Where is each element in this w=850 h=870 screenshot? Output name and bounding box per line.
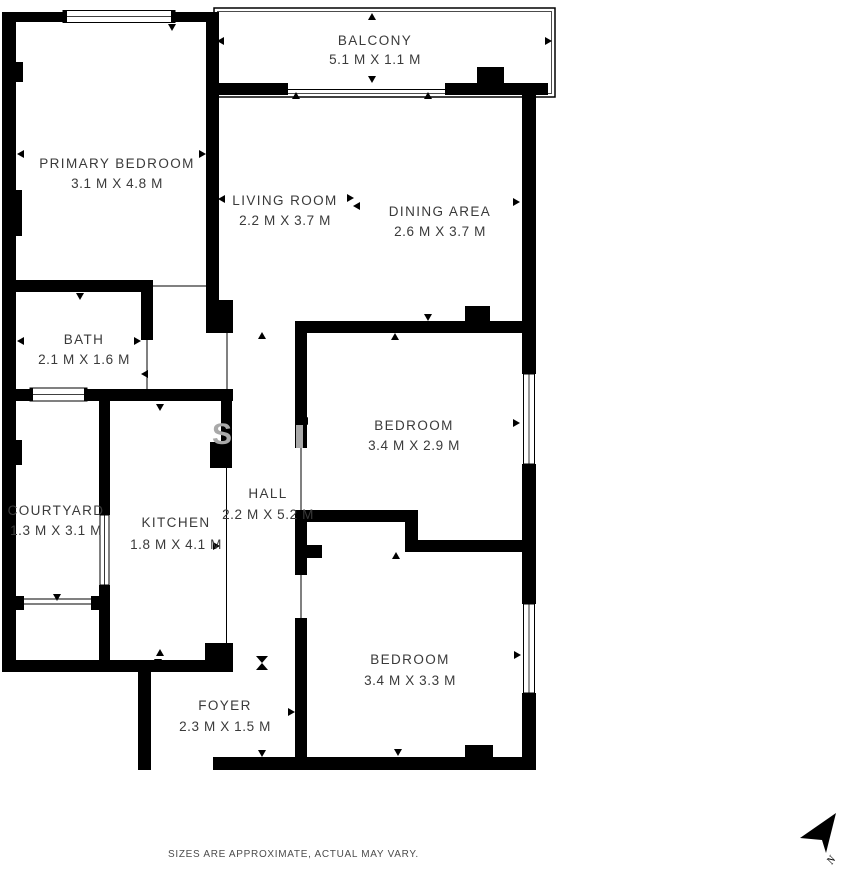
wall [522, 330, 536, 374]
window-cap [171, 11, 175, 23]
wall [138, 660, 151, 770]
room-dims-primary-bedroom: 3.1 M X 4.8 M [71, 176, 163, 191]
window-cap [84, 388, 87, 401]
wall [295, 321, 536, 333]
dimension-arrow [368, 13, 376, 20]
dimension-arrow [391, 333, 399, 340]
wall-pier [206, 300, 233, 333]
disclaimer-text: SIZES ARE APPROXIMATE, ACTUAL MAY VARY. [168, 849, 419, 860]
room-label-bedroom-bottom: BEDROOM [370, 652, 450, 667]
room-labels: BALCONY 5.1 M X 1.1 M PRIMARY BEDROOM 3.… [8, 33, 492, 734]
dimension-arrows [17, 13, 552, 757]
dimension-arrow [545, 37, 552, 45]
dimension-arrow [156, 649, 164, 656]
room-dims-bath: 2.1 M X 1.6 M [38, 352, 130, 367]
room-dims-hall: 2.2 M X 5.2 M [222, 507, 314, 522]
window-cap [30, 388, 33, 401]
room-dims-living-room: 2.2 M X 3.7 M [239, 213, 331, 228]
wall-pier [16, 190, 22, 236]
wall [99, 390, 110, 515]
dimension-arrow [258, 332, 266, 339]
wall-pier [477, 67, 504, 83]
room-label-foyer: FOYER [198, 698, 252, 713]
room-label-bedroom-middle: BEDROOM [374, 418, 454, 433]
door-marker [256, 656, 268, 663]
floor-plan-svg: S BALCONY 5.1 M X 1.1 M PRIMARY BEDROOM … [0, 0, 850, 870]
wall-pier [307, 545, 322, 558]
room-label-bath: BATH [64, 332, 105, 347]
room-dims-courtyard: 1.3 M X 3.1 M [10, 523, 102, 538]
wall [2, 280, 152, 292]
room-dims-bedroom-bottom: 3.4 M X 3.3 M [364, 673, 456, 688]
room-label-balcony: BALCONY [338, 33, 412, 48]
dimension-arrow [353, 202, 360, 210]
wall-pier [91, 596, 99, 610]
room-label-dining-area: DINING AREA [389, 204, 491, 219]
wall-pier [16, 596, 24, 610]
dimension-arrow [292, 92, 300, 99]
dimension-arrow [156, 404, 164, 411]
dimension-arrow [53, 594, 61, 601]
room-label-kitchen: KITCHEN [141, 515, 210, 530]
room-dims-kitchen: 1.8 M X 4.1 M [130, 537, 222, 552]
dimension-arrow [394, 749, 402, 756]
dimension-arrow [17, 337, 24, 345]
wall [206, 12, 219, 300]
dimension-arrow [347, 194, 354, 202]
wall [99, 585, 110, 660]
north-arrow-icon [800, 813, 836, 853]
dimension-arrow [513, 419, 520, 427]
watermark-bar [296, 425, 303, 448]
dimension-arrow [168, 24, 176, 31]
floor-plan-page: { "plan": { "rooms": [ {"id": "balcony",… [0, 0, 850, 870]
dimension-arrow [424, 314, 432, 321]
window-cap [63, 11, 67, 23]
room-dims-dining-area: 2.6 M X 3.7 M [394, 224, 486, 239]
watermark: S [212, 418, 303, 451]
dimension-arrow [134, 337, 141, 345]
room-dims-foyer: 2.3 M X 1.5 M [179, 719, 271, 734]
room-dims-balcony: 5.1 M X 1.1 M [329, 52, 421, 67]
wall [522, 83, 536, 330]
wall-pier [16, 440, 22, 465]
room-label-courtyard: COURTYARD [8, 503, 105, 518]
wall [213, 757, 536, 770]
dimension-arrow [258, 750, 266, 757]
wall [405, 540, 536, 552]
wall [99, 389, 233, 401]
wall [2, 12, 16, 662]
door-marker [256, 663, 268, 670]
dimension-arrow [199, 150, 206, 158]
north-label: N [824, 853, 839, 867]
dimension-arrow [513, 198, 520, 206]
dimension-arrow [514, 651, 521, 659]
wall-pier [465, 306, 490, 321]
wall-pier [465, 745, 493, 757]
room-label-living-room: LIVING ROOM [232, 193, 337, 208]
wall [2, 660, 233, 672]
wall [522, 464, 536, 604]
watermark-letter: S [212, 418, 232, 451]
room-label-primary-bedroom: PRIMARY BEDROOM [39, 156, 195, 171]
room-label-hall: HALL [248, 486, 287, 501]
dimension-arrow [392, 552, 400, 559]
wall-pier [205, 643, 233, 660]
room-dims-bedroom-middle: 3.4 M X 2.9 M [368, 438, 460, 453]
dimension-arrow [76, 293, 84, 300]
dimension-arrow [368, 76, 376, 83]
dimension-arrow [141, 370, 148, 378]
north-compass: N [800, 813, 839, 868]
dimension-arrow [17, 150, 24, 158]
dimension-arrow [424, 92, 432, 99]
wall-pier [16, 62, 23, 82]
dimension-arrow [218, 195, 225, 203]
dimension-arrow [288, 708, 295, 716]
wall [141, 280, 153, 340]
